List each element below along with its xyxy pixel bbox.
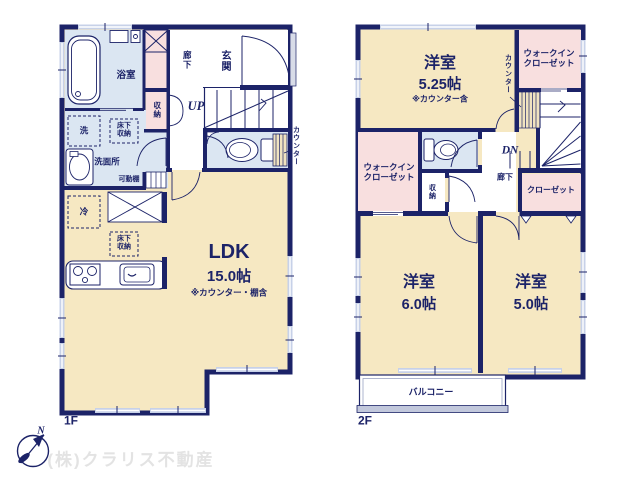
room-a-label: 洋室 bbox=[424, 55, 456, 73]
bath-vanity-icon bbox=[110, 31, 140, 43]
stairs-down-label: DN bbox=[502, 145, 519, 158]
balcony-rail bbox=[357, 406, 508, 413]
toilet2-icon bbox=[424, 139, 458, 161]
washbasin-icon bbox=[66, 149, 93, 185]
floor1-plan bbox=[58, 23, 296, 415]
floor2-label: 2F bbox=[358, 414, 372, 427]
storage2-label: 収納 bbox=[429, 184, 436, 200]
ldk-note-label: ※カウンター・棚含 bbox=[191, 288, 267, 297]
washroom-label: 洗面所 bbox=[94, 157, 120, 166]
stairs-up-label: UP bbox=[188, 100, 205, 114]
counter1-label: カウンター bbox=[293, 126, 300, 166]
corridor1-label: 廊下 bbox=[183, 51, 192, 70]
compass-icon bbox=[17, 434, 49, 467]
closet-label: クローゼット bbox=[527, 187, 575, 196]
floorplan-graphics bbox=[0, 0, 640, 480]
company-watermark: (株)クラリス不動産 bbox=[47, 452, 214, 471]
room-a-size-label: 5.25帖 bbox=[419, 78, 462, 94]
room-c-size-label: 5.0帖 bbox=[514, 298, 549, 314]
underfloor2-label: 床下 収納 bbox=[117, 236, 131, 253]
entrance-label: 玄関 bbox=[219, 50, 229, 72]
movable-shelf-label: 可動棚 bbox=[119, 176, 140, 184]
floor2-plan bbox=[354, 23, 587, 413]
room-a-note-label: ※カウンター含 bbox=[412, 96, 468, 105]
floor1-label: 1F bbox=[64, 414, 78, 427]
wic-b-label: ウォークイン クローゼット bbox=[363, 162, 414, 182]
corridor2-label: 廊下 bbox=[497, 174, 513, 183]
fridge-label: 冷 bbox=[80, 207, 89, 216]
shoe-storage-area bbox=[144, 30, 168, 88]
counter2-label: カウンター bbox=[505, 54, 512, 94]
underfloor1-label: 床下 収納 bbox=[117, 123, 131, 140]
movable-shelf-hatch bbox=[146, 172, 166, 188]
kitchen-x-counter-icon bbox=[108, 192, 162, 222]
storage1-label: 収納 bbox=[153, 102, 161, 119]
floorplan-canvas: 浴室 廊下 玄関 UP 収納 洗 床下 収納 洗面所 可動棚 カウンター 冷 床… bbox=[0, 0, 640, 480]
room-b-label: 洋室 bbox=[403, 274, 435, 292]
washer-label: 洗 bbox=[80, 126, 89, 135]
room-c-label: 洋室 bbox=[515, 274, 547, 292]
ldk-label: LDK bbox=[208, 241, 249, 263]
bathtub-icon bbox=[68, 36, 100, 104]
compass-north-label: N bbox=[37, 426, 44, 437]
bath-label: 浴室 bbox=[116, 71, 135, 81]
kitchen-icon bbox=[66, 261, 166, 289]
balcony-label: バルコニー bbox=[409, 388, 454, 398]
entrance-sill bbox=[290, 33, 296, 86]
ldk-size-label: 15.0帖 bbox=[207, 269, 251, 286]
room-b-size-label: 6.0帖 bbox=[402, 298, 437, 314]
wic-a-label: ウォークイン クローゼット bbox=[523, 48, 574, 68]
